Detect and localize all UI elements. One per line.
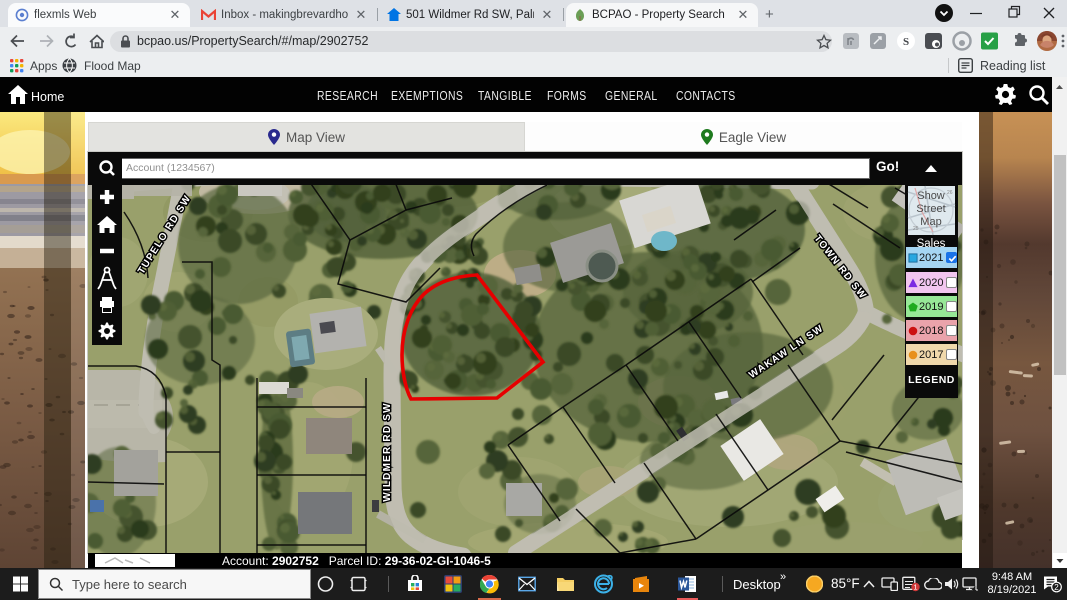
svg-text:25: 25 [913,226,919,232]
svg-text:Show: Show [917,190,945,202]
svg-text:S: S [903,36,909,48]
svg-text:Street: Street [916,203,945,215]
svg-text:1: 1 [913,583,917,592]
svg-text:26: 26 [947,190,953,196]
svg-text:2: 2 [1054,583,1059,592]
svg-text:WILDMER RD SW: WILDMER RD SW [382,402,393,501]
svg-text:Map: Map [920,216,941,228]
